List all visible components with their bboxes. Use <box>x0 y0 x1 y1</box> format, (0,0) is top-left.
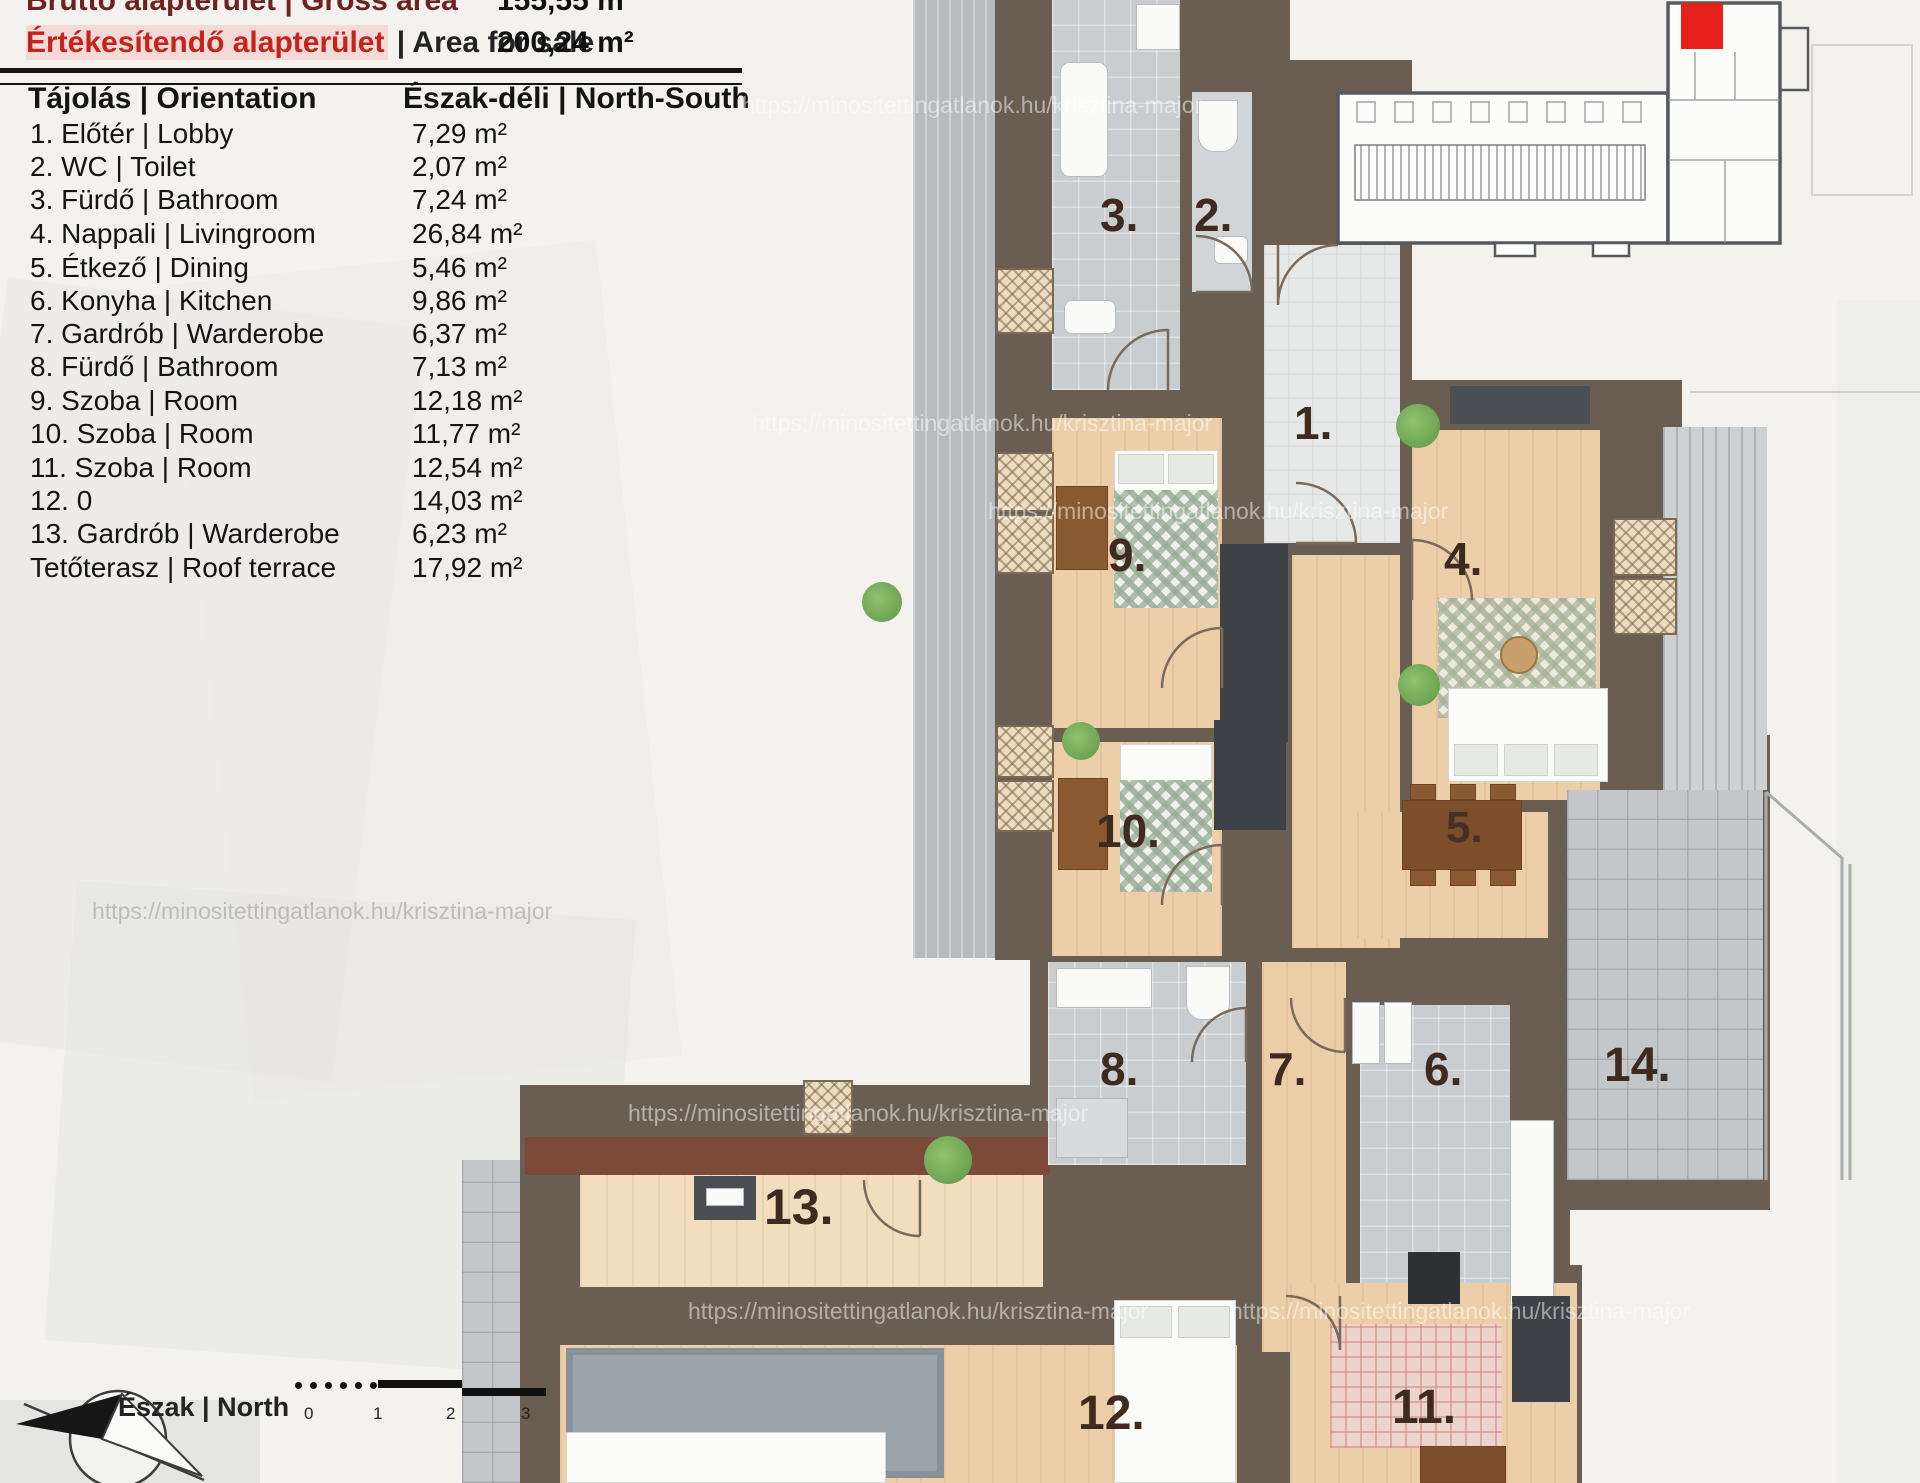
wardrobe <box>1220 544 1288 742</box>
compass-label: Észak | North <box>118 1392 289 1423</box>
plant <box>862 582 902 622</box>
floorplan-sheet: Bruttó alapterület | Gross area 155,55 m… <box>0 0 1920 1483</box>
sofa-cushion <box>1454 744 1498 776</box>
floorplan: 3. 2. 1. 9. 4. 10. 5. 8. 7. 6. 14. 13. 1… <box>0 0 1920 1483</box>
watermark: https://minositettingatlanok.hu/krisztin… <box>92 898 552 925</box>
coffee-table <box>1500 636 1538 674</box>
pillow <box>1118 454 1164 484</box>
room-14-floor <box>1567 790 1763 1180</box>
chair <box>1410 870 1436 886</box>
vanity-sink <box>1056 968 1152 1008</box>
chair <box>1450 784 1476 800</box>
site-overview-plan <box>1335 0 1920 300</box>
unit-marker <box>1681 3 1723 49</box>
sofa-cushion <box>1554 744 1598 776</box>
wardrobe-front <box>706 1188 744 1206</box>
bathtub <box>1060 62 1108 177</box>
watermark: https://minositettingatlanok.hu/krisztin… <box>988 498 1448 525</box>
scale-tick: 3 <box>521 1404 530 1424</box>
room-label-1: 1. <box>1294 400 1332 446</box>
kitchen-appliances <box>1510 1120 1554 1305</box>
balcony-door-symbol <box>996 780 1054 832</box>
room-label-5: 5. <box>1446 806 1483 850</box>
watermark: https://minositettingatlanok.hu/krisztin… <box>742 92 1202 119</box>
scale-dotted-segment <box>295 1382 377 1389</box>
toilet <box>1198 100 1238 152</box>
plant <box>924 1136 972 1184</box>
plant <box>1062 722 1100 760</box>
scale-segment <box>462 1388 546 1396</box>
room-label-3: 3. <box>1100 192 1138 238</box>
balcony-door-symbol <box>1613 518 1677 576</box>
chair <box>1410 784 1436 800</box>
closet <box>1384 1002 1412 1064</box>
toilet <box>1186 966 1230 1020</box>
bench <box>1420 1446 1506 1483</box>
room-label-6: 6. <box>1424 1046 1462 1092</box>
bed <box>566 1432 886 1483</box>
sink <box>1064 300 1116 334</box>
room-label-2: 2. <box>1194 192 1232 238</box>
room-label-11: 11. <box>1392 1384 1456 1432</box>
balcony-door-symbol <box>1613 578 1677 635</box>
watermark: https://minositettingatlanok.hu/krisztin… <box>628 1100 1088 1127</box>
terrace-railing <box>1766 792 1850 1180</box>
closet <box>1352 1002 1380 1064</box>
chair <box>1450 870 1476 886</box>
room-label-8: 8. <box>1100 1046 1138 1092</box>
room-label-4: 4. <box>1444 536 1482 582</box>
watermark: https://minositettingatlanok.hu/krisztin… <box>752 410 1212 437</box>
pillow <box>1168 454 1214 484</box>
washing-machine <box>1136 4 1180 50</box>
room-label-13: 13. <box>764 1182 834 1232</box>
stair-hatch <box>1355 145 1645 200</box>
scale-tick: 1 <box>373 1404 382 1424</box>
wardrobe <box>1214 720 1286 830</box>
west-balcony-strip <box>913 0 995 958</box>
watermark: https://minositettingatlanok.hu/krisztin… <box>1230 1298 1690 1325</box>
watermark: https://minositettingatlanok.hu/krisztin… <box>688 1298 1148 1325</box>
room-label-10: 10. <box>1096 808 1160 854</box>
east-terrace-strip <box>1663 427 1767 790</box>
scale-tick: 2 <box>446 1404 455 1424</box>
room-label-12: 12. <box>1078 1390 1145 1438</box>
scale-segment <box>378 1380 462 1388</box>
room-label-9: 9. <box>1108 532 1146 578</box>
plant <box>1398 664 1440 706</box>
scale-tick: 0 <box>304 1404 313 1424</box>
chair <box>1490 870 1516 886</box>
balcony-door-symbol <box>996 268 1054 334</box>
room-label-7: 7. <box>1268 1046 1306 1092</box>
sofa-cushion <box>1504 744 1548 776</box>
balcony-door-symbol <box>996 725 1054 778</box>
window <box>1450 386 1590 424</box>
plant <box>1396 404 1440 448</box>
chair <box>1490 784 1516 800</box>
pillow <box>1178 1306 1230 1338</box>
kitchen-island <box>1408 1252 1460 1304</box>
scale-bar: 0 1 2 3 <box>290 1378 630 1438</box>
room-label-14: 14. <box>1604 1042 1671 1090</box>
